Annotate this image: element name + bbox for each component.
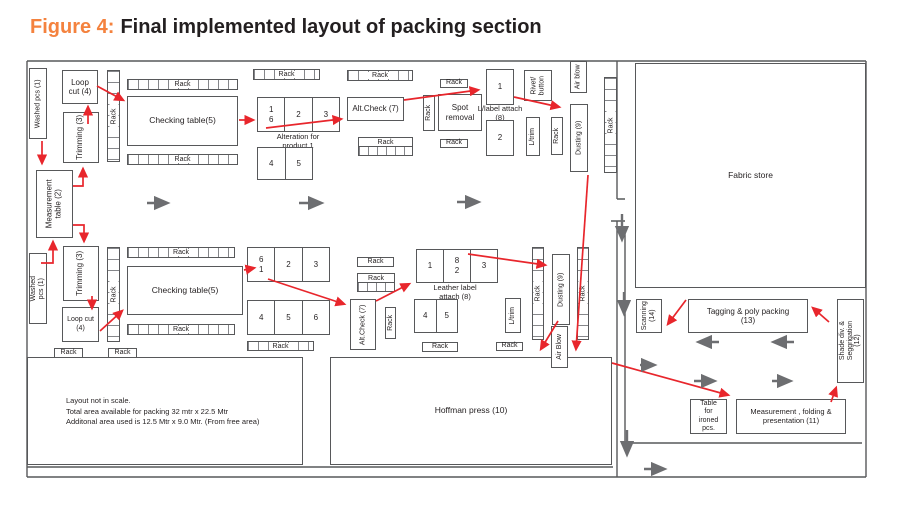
box-shade-div-12: Shade div. & Seggrigation (12) bbox=[837, 299, 864, 383]
rack-label: Rack bbox=[269, 343, 293, 350]
tagging-label: Tagging & poly packing (13) bbox=[705, 307, 791, 325]
table-ironed-label: Table for ironed pcs. bbox=[697, 400, 720, 432]
air-blow-label: Air Blow bbox=[556, 334, 564, 360]
alteration-cell-5: 5 bbox=[285, 148, 313, 179]
checking-table-label: Checking table(5) bbox=[152, 286, 219, 296]
measurement-folding-label: Measurement , folding & presentation (11… bbox=[745, 408, 837, 425]
spot-removal-label: Spot removal bbox=[445, 103, 475, 121]
box-alt-check-7-upper: Alt.Check (7) bbox=[347, 97, 404, 121]
alt-check-label: Alt.Check (7) bbox=[352, 104, 398, 113]
washed-pcs-label: Washed pcs (1) bbox=[30, 276, 45, 301]
rack-label: Rack bbox=[368, 258, 384, 266]
rack-shelf: Rack bbox=[127, 324, 235, 335]
dusting-label: Dusting (9) bbox=[557, 272, 565, 306]
box-scanning-14: Scanning (14) bbox=[636, 299, 662, 333]
note-line-1: Layout not in scale. bbox=[66, 396, 259, 407]
washed-pcs-label: Washed pcs (1) bbox=[34, 79, 42, 128]
cell-4: 4 bbox=[415, 300, 436, 332]
rack-label: Rack bbox=[446, 79, 462, 87]
rack-label: Rack bbox=[169, 249, 193, 256]
cell-2: 2 bbox=[274, 248, 301, 281]
box-washed-pcs-1-upper: Washed pcs (1) bbox=[29, 68, 47, 139]
rack-label: Rack bbox=[275, 71, 299, 78]
rack-label: Rack bbox=[171, 156, 195, 163]
cell-6: 6 bbox=[302, 301, 329, 334]
rack-shelf: Rack bbox=[127, 247, 235, 258]
measurement-table-label: Measurement table (2) bbox=[46, 180, 64, 229]
box-loop-cut-4-upper: Loop cut (4) bbox=[62, 70, 98, 104]
rack-shelf: Rack bbox=[127, 79, 238, 90]
loop-cut-label: Loop cut (4) bbox=[67, 78, 93, 96]
rack-vertical: Rack bbox=[423, 95, 435, 131]
box-measurement-folding-11: Measurement , folding & presentation (11… bbox=[736, 399, 846, 434]
alteration-tables-group: 16 2 3 bbox=[257, 97, 340, 132]
table-group-612: 61 2 3 bbox=[247, 247, 330, 282]
rack-label: Rack bbox=[534, 278, 543, 310]
rack-label: Rack bbox=[61, 349, 77, 357]
fabric-store-label: Fabric store bbox=[728, 171, 773, 181]
box-spot-removal: Spot removal bbox=[438, 94, 482, 131]
alteration-cell-2: 2 bbox=[284, 98, 311, 131]
rack-column-right: Rack bbox=[604, 77, 617, 173]
figure-title-text: Final implemented layout of packing sect… bbox=[120, 16, 541, 38]
layout-note-text: Layout not in scale. Total area availabl… bbox=[66, 396, 259, 428]
l-trim-label: L/trim bbox=[509, 307, 517, 325]
rack-label: Rack bbox=[579, 278, 588, 310]
box-checking-table-5-lower: Checking table(5) bbox=[127, 266, 243, 315]
box-washed-pcs-1-lower: Washed pcs (1) bbox=[29, 253, 47, 324]
leather-cell-3: 3 bbox=[470, 250, 497, 282]
shade-div-label: Shade div. & Seggrigation (12) bbox=[839, 321, 862, 360]
rack-vertical: Rack bbox=[385, 307, 396, 339]
hoffman-press-label: Hoffman press (10) bbox=[435, 406, 508, 416]
l-trim-label: L/trim bbox=[529, 128, 537, 146]
box-air-blow-bottom: Air Blow bbox=[551, 326, 568, 368]
rack-label: Rack bbox=[368, 72, 392, 79]
loop-cut-label: Loop cut (4) bbox=[64, 316, 97, 332]
rack-label: Rack bbox=[387, 315, 395, 331]
rack-label: Rack bbox=[169, 326, 193, 333]
rack-label: Rack bbox=[109, 100, 118, 132]
leather-group-45: 4 5 bbox=[414, 299, 458, 333]
rack-label: Rack bbox=[115, 349, 131, 357]
alt-check-label: Alt.Check (7) bbox=[359, 304, 367, 344]
air-blow-label: Air blow bbox=[575, 65, 583, 90]
cell-6-1: 61 bbox=[248, 248, 274, 281]
figure-number: Figure 4: bbox=[30, 16, 114, 38]
note-line-3: Additonal area used is 12.5 Mtr x 9.0 Mt… bbox=[66, 417, 259, 428]
cell-5: 5 bbox=[274, 301, 301, 334]
table-group-456: 4 5 6 bbox=[247, 300, 330, 335]
box-llabel-attach-2: 2 bbox=[486, 120, 514, 156]
rack-small: Rack bbox=[440, 79, 468, 88]
cell-5: 5 bbox=[436, 300, 458, 332]
box-trimming-3-upper: Trimming (3) bbox=[63, 112, 99, 163]
trimming-label: Trimming (3) bbox=[77, 115, 86, 160]
box-air-blow-top: Air blow bbox=[570, 61, 587, 93]
rivet-button-label: Rivet/ button bbox=[530, 73, 545, 99]
rack-column-upper: Rack bbox=[107, 70, 120, 162]
box-dusting-9-lower: Dusting (9) bbox=[552, 254, 570, 325]
box-table-ironed-pcs: Table for ironed pcs. bbox=[690, 399, 727, 434]
note-line-2: Total area available for packing 32 mtr … bbox=[66, 407, 259, 418]
box-tagging-poly-13: Tagging & poly packing (13) bbox=[688, 299, 808, 333]
rack-shelf-double: Rack bbox=[357, 273, 395, 292]
checking-table-label: Checking table(5) bbox=[149, 116, 216, 126]
rack-shelf: Rack bbox=[253, 69, 320, 80]
rack-label: Rack bbox=[358, 274, 394, 282]
alteration-tables-45: 4 5 bbox=[257, 147, 313, 180]
cell-4: 4 bbox=[248, 301, 274, 334]
box-l-trim-upper: L/trim bbox=[526, 117, 540, 156]
figure-4-layout-diagram: Figure 4:Final implemented layout of pac… bbox=[0, 0, 900, 519]
rack-shelf: Rack bbox=[127, 154, 238, 165]
box-loop-cut-4-lower: Loop cut (4) bbox=[62, 307, 99, 342]
rack-label: Rack bbox=[446, 139, 462, 147]
rack-label: Rack bbox=[502, 342, 518, 350]
box-hoffman-press-10: Hoffman press (10) bbox=[330, 357, 612, 465]
rack-small: Rack bbox=[422, 342, 458, 352]
rack-label: Rack bbox=[171, 81, 195, 88]
box-dusting-9-upper: Dusting (9) bbox=[570, 104, 588, 172]
dusting-label: Dusting (9) bbox=[575, 121, 583, 155]
box-fabric-store: Fabric store bbox=[635, 63, 866, 288]
rack-column-lower: Rack bbox=[107, 247, 120, 342]
alteration-cell-3: 3 bbox=[312, 98, 339, 131]
rack-shelf-double: Rack bbox=[358, 137, 413, 156]
rack-shelf: Rack bbox=[347, 70, 413, 81]
figure-title: Figure 4:Final implemented layout of pac… bbox=[30, 16, 542, 39]
rack-small: Rack bbox=[496, 342, 523, 351]
box-llabel-attach-1: 1 bbox=[486, 69, 514, 105]
leather-cell-8-2: 82 bbox=[443, 250, 470, 282]
rack-cells bbox=[358, 282, 394, 291]
rack-label: Rack bbox=[359, 138, 412, 146]
box-measurement-table-2: Measurement table (2) bbox=[36, 170, 73, 238]
rack-label: Rack bbox=[606, 109, 615, 141]
rack-cells bbox=[359, 146, 412, 155]
rack-vertical: Rack bbox=[551, 117, 563, 155]
rack-label: Rack bbox=[553, 128, 561, 144]
box-checking-table-5-upper: Checking table(5) bbox=[127, 96, 238, 146]
cell-3: 3 bbox=[302, 248, 329, 281]
leather-cell-1: 1 bbox=[417, 250, 443, 282]
alteration-cell-1: 16 bbox=[258, 98, 284, 131]
alteration-cell-4: 4 bbox=[258, 148, 285, 179]
leather-label-group: 1 82 3 bbox=[416, 249, 498, 283]
box-l-trim-lower: L/trim bbox=[505, 298, 521, 333]
rack-label: Rack bbox=[109, 279, 118, 311]
box-alt-check-7-lower: Alt.Check (7) bbox=[350, 299, 376, 350]
rack-small: Rack bbox=[440, 139, 468, 148]
box-rivet-button: Rivet/ button bbox=[524, 70, 552, 101]
scanning-label: Scanning (14) bbox=[641, 301, 656, 330]
rack-label: Rack bbox=[425, 105, 433, 121]
rack-column: Rack bbox=[577, 247, 589, 340]
rack-shelf: Rack bbox=[247, 341, 314, 351]
rack-column: Rack bbox=[532, 247, 544, 340]
trimming-label: Trimming (3) bbox=[77, 251, 86, 296]
box-trimming-3-lower: Trimming (3) bbox=[63, 246, 99, 301]
rack-label: Rack bbox=[432, 343, 448, 351]
rack-small: Rack bbox=[357, 257, 394, 267]
